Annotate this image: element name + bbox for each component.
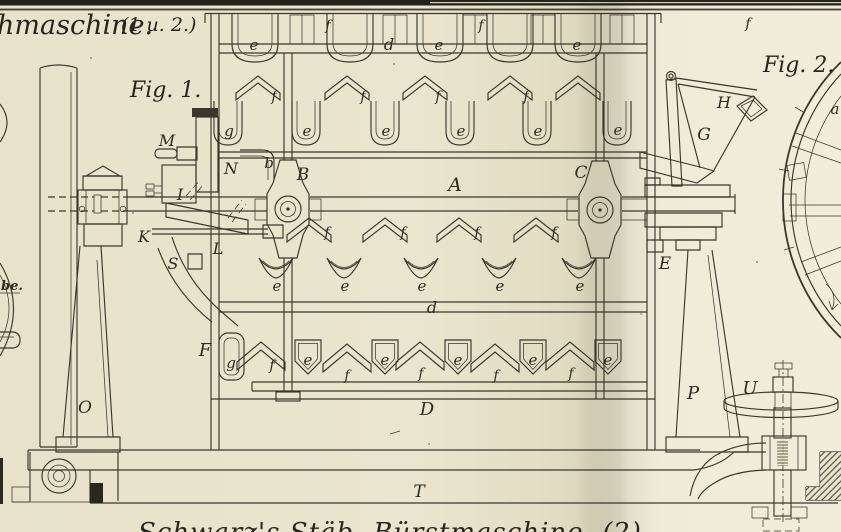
part-label-e: e <box>341 277 350 295</box>
fig2-label: Fig. 2. <box>762 53 834 78</box>
part-label-e: e <box>381 351 390 369</box>
part-label-b: b <box>264 154 274 172</box>
edge-text: be. <box>0 279 23 294</box>
part-label-S: S <box>168 254 179 273</box>
machine-engraving: A B C D E F G H I K L M N O P S T U b d … <box>0 0 841 532</box>
part-label-g: g <box>224 122 234 140</box>
part-label-d: d <box>384 35 394 54</box>
part-label-g: g <box>226 354 236 372</box>
part-label-G: G <box>697 125 711 145</box>
part-label-M: M <box>158 131 176 150</box>
part-label-P: P <box>686 383 700 404</box>
part-label-e: e <box>418 277 427 295</box>
part-label-a: a <box>831 100 840 118</box>
part-label-e: e <box>457 122 466 140</box>
part-label-e: e <box>382 122 391 140</box>
part-label-e: e <box>529 351 538 369</box>
part-label-e: e <box>273 277 282 295</box>
part-label-e: e <box>303 122 312 140</box>
fig1-label: Fig. 1. <box>129 78 201 103</box>
part-label-D: D <box>419 399 435 420</box>
part-label-O: O <box>78 398 92 418</box>
engraving-plate: A B C D E F G H I K L M N O P S T U b d … <box>0 0 841 532</box>
part-label-e: e <box>250 36 259 54</box>
part-label-U: U <box>742 378 758 399</box>
part-label-d: d <box>427 298 437 317</box>
part-label-A: A <box>446 174 462 196</box>
plate-title-number: (1 u. 2.) <box>121 14 196 36</box>
part-label-L: L <box>212 239 224 258</box>
part-label-K: K <box>137 227 151 246</box>
part-label-e: e <box>304 351 313 369</box>
part-label-I: I <box>176 185 184 204</box>
part-label-B: B <box>296 165 310 185</box>
part-label-T: T <box>413 482 426 502</box>
caption: Schwarz's Stäb- Bürstmaschine. (2) <box>138 518 642 532</box>
part-label-e: e <box>454 351 463 369</box>
edge-word-fragment: be. <box>1 279 23 294</box>
part-label-e: e <box>534 122 543 140</box>
part-label-N: N <box>223 159 239 178</box>
part-label-F: F <box>198 340 213 361</box>
part-label-H: H <box>716 93 732 112</box>
part-label-e: e <box>435 36 444 54</box>
plate-top-edge <box>0 0 841 10</box>
paper-fold-shadow <box>575 0 662 532</box>
base-step-corner <box>90 483 103 503</box>
part-label-e: e <box>496 277 505 295</box>
